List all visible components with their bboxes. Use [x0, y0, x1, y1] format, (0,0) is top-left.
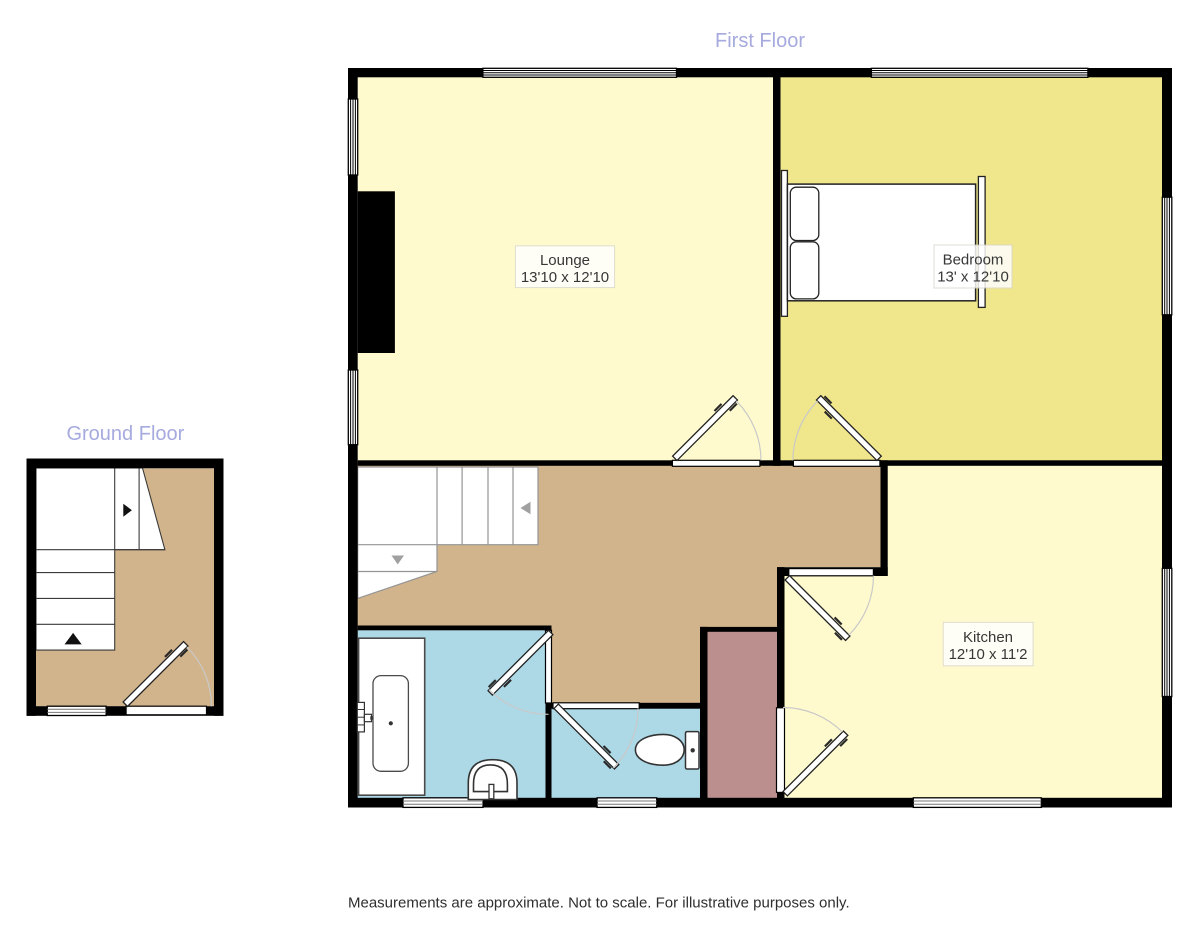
- svg-text:13' x 12'10: 13' x 12'10: [937, 269, 1009, 286]
- svg-text:First Floor: First Floor: [715, 30, 805, 52]
- svg-text:Ground Floor: Ground Floor: [66, 423, 184, 445]
- svg-text:13'10 x 12'10: 13'10 x 12'10: [521, 269, 609, 286]
- svg-text:12'10 x 11'2: 12'10 x 11'2: [949, 646, 1028, 663]
- svg-text:Kitchen: Kitchen: [963, 629, 1013, 646]
- svg-text:Bedroom: Bedroom: [943, 252, 1004, 269]
- svg-text:Measurements are approximate.: Measurements are approximate. Not to sca…: [348, 895, 850, 912]
- svg-text:Lounge: Lounge: [540, 252, 590, 269]
